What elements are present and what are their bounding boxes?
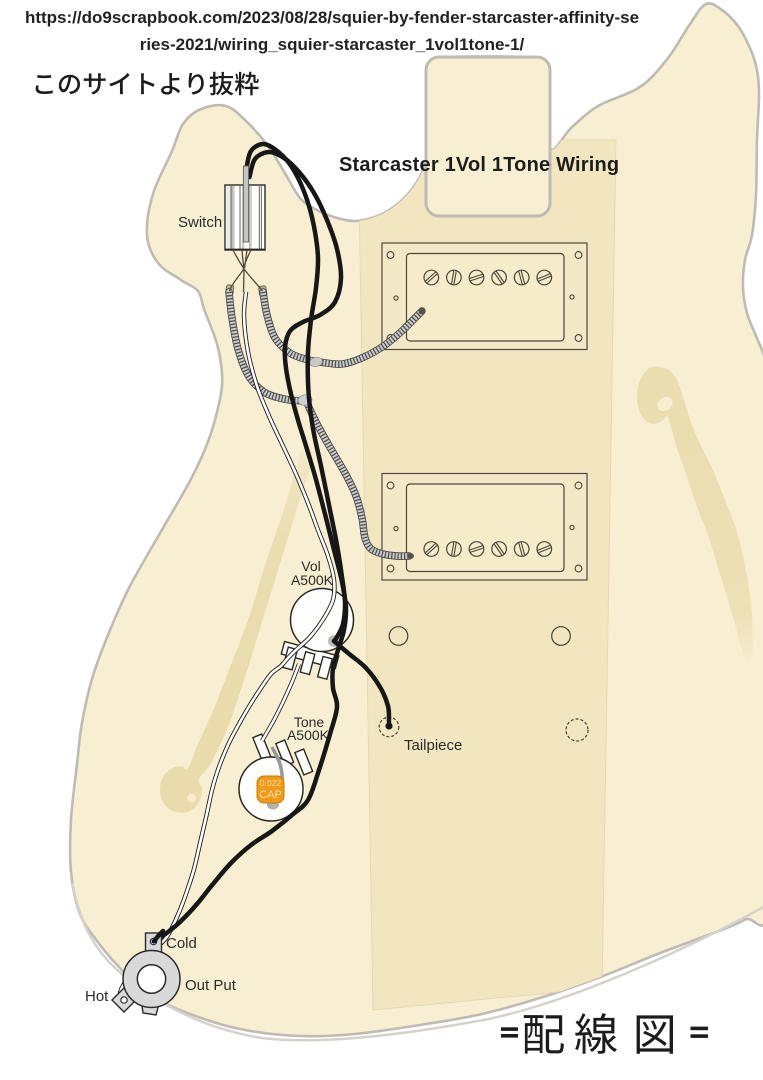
- svg-text:CAP: CAP: [259, 789, 282, 801]
- svg-text:ries-2021/wiring_squier-starca: ries-2021/wiring_squier-starcaster_1vol1…: [140, 35, 525, 54]
- svg-text:A500K: A500K: [287, 727, 330, 743]
- svg-text:Cold: Cold: [166, 935, 197, 952]
- svg-text:Tailpiece: Tailpiece: [404, 737, 462, 754]
- svg-text:A500K: A500K: [291, 572, 334, 588]
- svg-text:Out Put: Out Put: [185, 977, 237, 994]
- svg-text:Switch: Switch: [178, 214, 222, 231]
- svg-text:Starcaster 1Vol 1Tone Wiring: Starcaster 1Vol 1Tone Wiring: [339, 154, 619, 176]
- svg-text:Hot: Hot: [85, 988, 109, 1005]
- svg-text:0.022: 0.022: [260, 778, 282, 788]
- svg-text:https://do9scrapbook.com/2023/: https://do9scrapbook.com/2023/08/28/squi…: [25, 8, 639, 27]
